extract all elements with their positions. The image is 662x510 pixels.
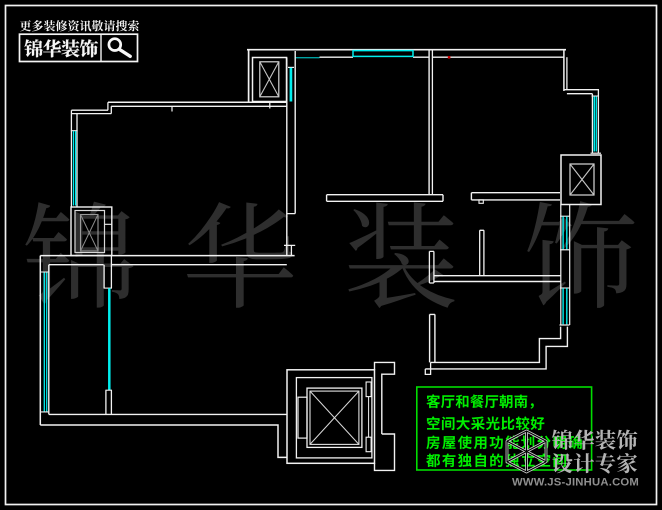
svg-text:WWW.JS-JINHUA.COM: WWW.JS-JINHUA.COM xyxy=(512,477,639,489)
